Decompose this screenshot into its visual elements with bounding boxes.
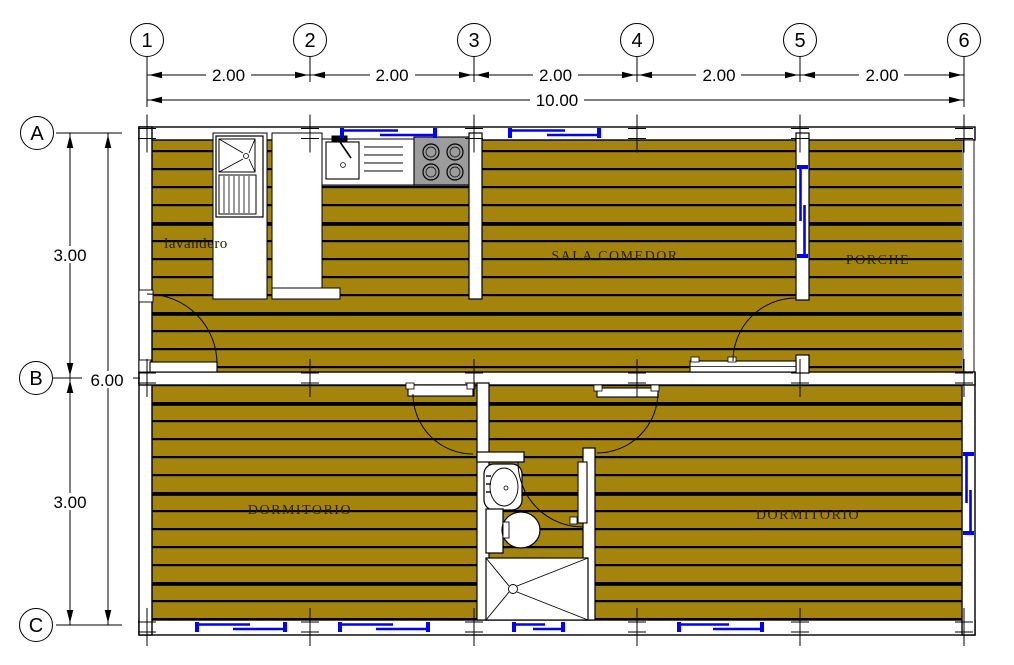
laundry-tub: [213, 133, 267, 299]
kitchen-sink: [326, 142, 359, 179]
label-porch: PORCHE: [846, 253, 910, 268]
stove: [414, 137, 470, 185]
label-living-room: SALA COMEDOR: [551, 249, 678, 264]
dim-6m-total: 6.00: [90, 371, 123, 390]
dim-2m-3: 2.00: [539, 66, 572, 85]
label-laundry: lavandero: [164, 236, 228, 252]
grid-bubble-1: 1: [131, 24, 164, 57]
dim-10m-total: 10.00: [536, 91, 579, 110]
wall-right-lower: [962, 373, 975, 635]
bath-sink: [484, 464, 522, 510]
svg-text:4: 4: [631, 30, 642, 52]
svg-text:B: B: [29, 368, 42, 390]
dim-2m-4: 2.00: [702, 66, 735, 85]
label-bedroom-right: DORMITORIO: [756, 508, 860, 523]
shower: [486, 558, 588, 620]
dim-2m-5: 2.00: [865, 66, 898, 85]
wall-kitchen-divider: [469, 133, 482, 299]
grid-bubble-3: 3: [458, 24, 491, 57]
grid-bubble-6: 6: [948, 24, 981, 57]
floor-plan-drawing: 2.00 2.00 2.00 2.00 2.00 10.00 3.00 3.00…: [0, 0, 1014, 665]
grid-bubble-B: B: [20, 362, 53, 395]
dim-2m-2: 2.00: [375, 66, 408, 85]
svg-text:2: 2: [304, 30, 315, 52]
kitchen-faucet: [332, 136, 347, 142]
svg-text:5: 5: [794, 30, 805, 52]
floor-plan-canvas: 2.00 2.00 2.00 2.00 2.00 10.00 3.00 3.00…: [0, 0, 1014, 665]
wall-bottom: [139, 620, 975, 635]
wall-bath-top: [477, 452, 524, 462]
svg-text:3: 3: [468, 30, 479, 52]
kitchen-counter: [322, 136, 414, 185]
svg-text:A: A: [30, 123, 44, 145]
porch-edge: [963, 140, 974, 373]
svg-text:1: 1: [141, 30, 152, 52]
grid-bubble-C: C: [20, 609, 53, 642]
dim-2m-1: 2.00: [212, 66, 245, 85]
label-bedroom-left: DORMITORIO: [248, 503, 352, 518]
grid-bubble-2: 2: [294, 24, 327, 57]
grid-bubble-A: A: [21, 117, 54, 150]
dim-3m-1: 3.00: [53, 246, 86, 265]
grid-bubble-5: 5: [784, 24, 817, 57]
svg-text:C: C: [29, 615, 43, 637]
wall-middle-B: [139, 372, 975, 385]
dim-3m-2: 3.00: [53, 493, 86, 512]
grid-bubble-4: 4: [621, 24, 654, 57]
svg-text:6: 6: [958, 30, 969, 52]
